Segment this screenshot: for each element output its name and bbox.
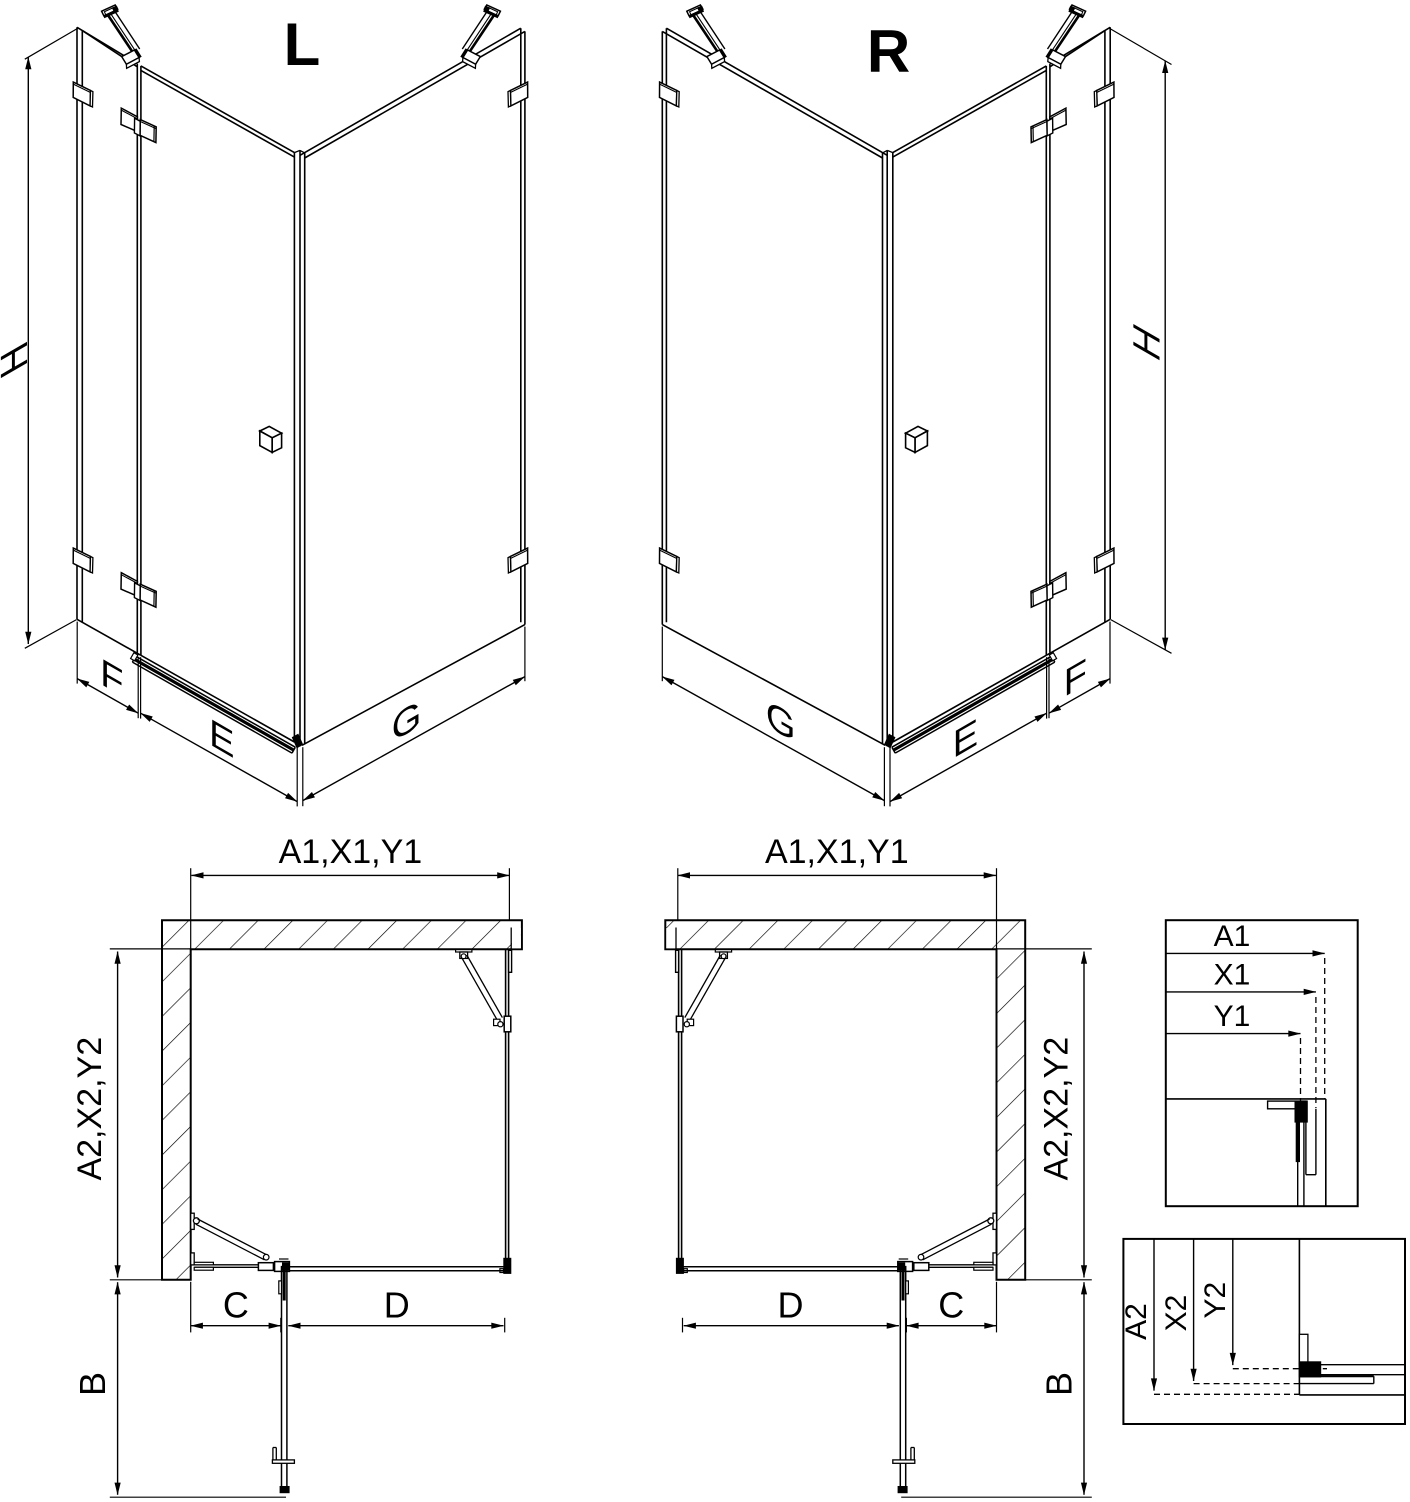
- svg-text:C: C: [938, 1285, 964, 1326]
- svg-text:A1: A1: [1214, 920, 1251, 953]
- svg-text:A1,X1,Y1: A1,X1,Y1: [765, 833, 909, 871]
- svg-text:D: D: [778, 1285, 804, 1326]
- svg-text:R: R: [867, 18, 910, 85]
- svg-text:C: C: [223, 1285, 249, 1326]
- svg-text:D: D: [384, 1285, 410, 1326]
- svg-text:Y2: Y2: [1199, 1282, 1232, 1319]
- svg-text:X1: X1: [1214, 959, 1251, 992]
- svg-text:B: B: [72, 1372, 113, 1396]
- svg-text:A1,X1,Y1: A1,X1,Y1: [279, 833, 423, 871]
- svg-text:A2: A2: [1120, 1303, 1153, 1340]
- svg-text:X2: X2: [1160, 1295, 1193, 1332]
- svg-text:L: L: [284, 11, 321, 78]
- svg-text:A2,X2,Y2: A2,X2,Y2: [1038, 1037, 1076, 1181]
- svg-text:A2,X2,Y2: A2,X2,Y2: [71, 1037, 109, 1181]
- svg-text:B: B: [1039, 1372, 1080, 1396]
- svg-text:Y1: Y1: [1214, 1000, 1251, 1033]
